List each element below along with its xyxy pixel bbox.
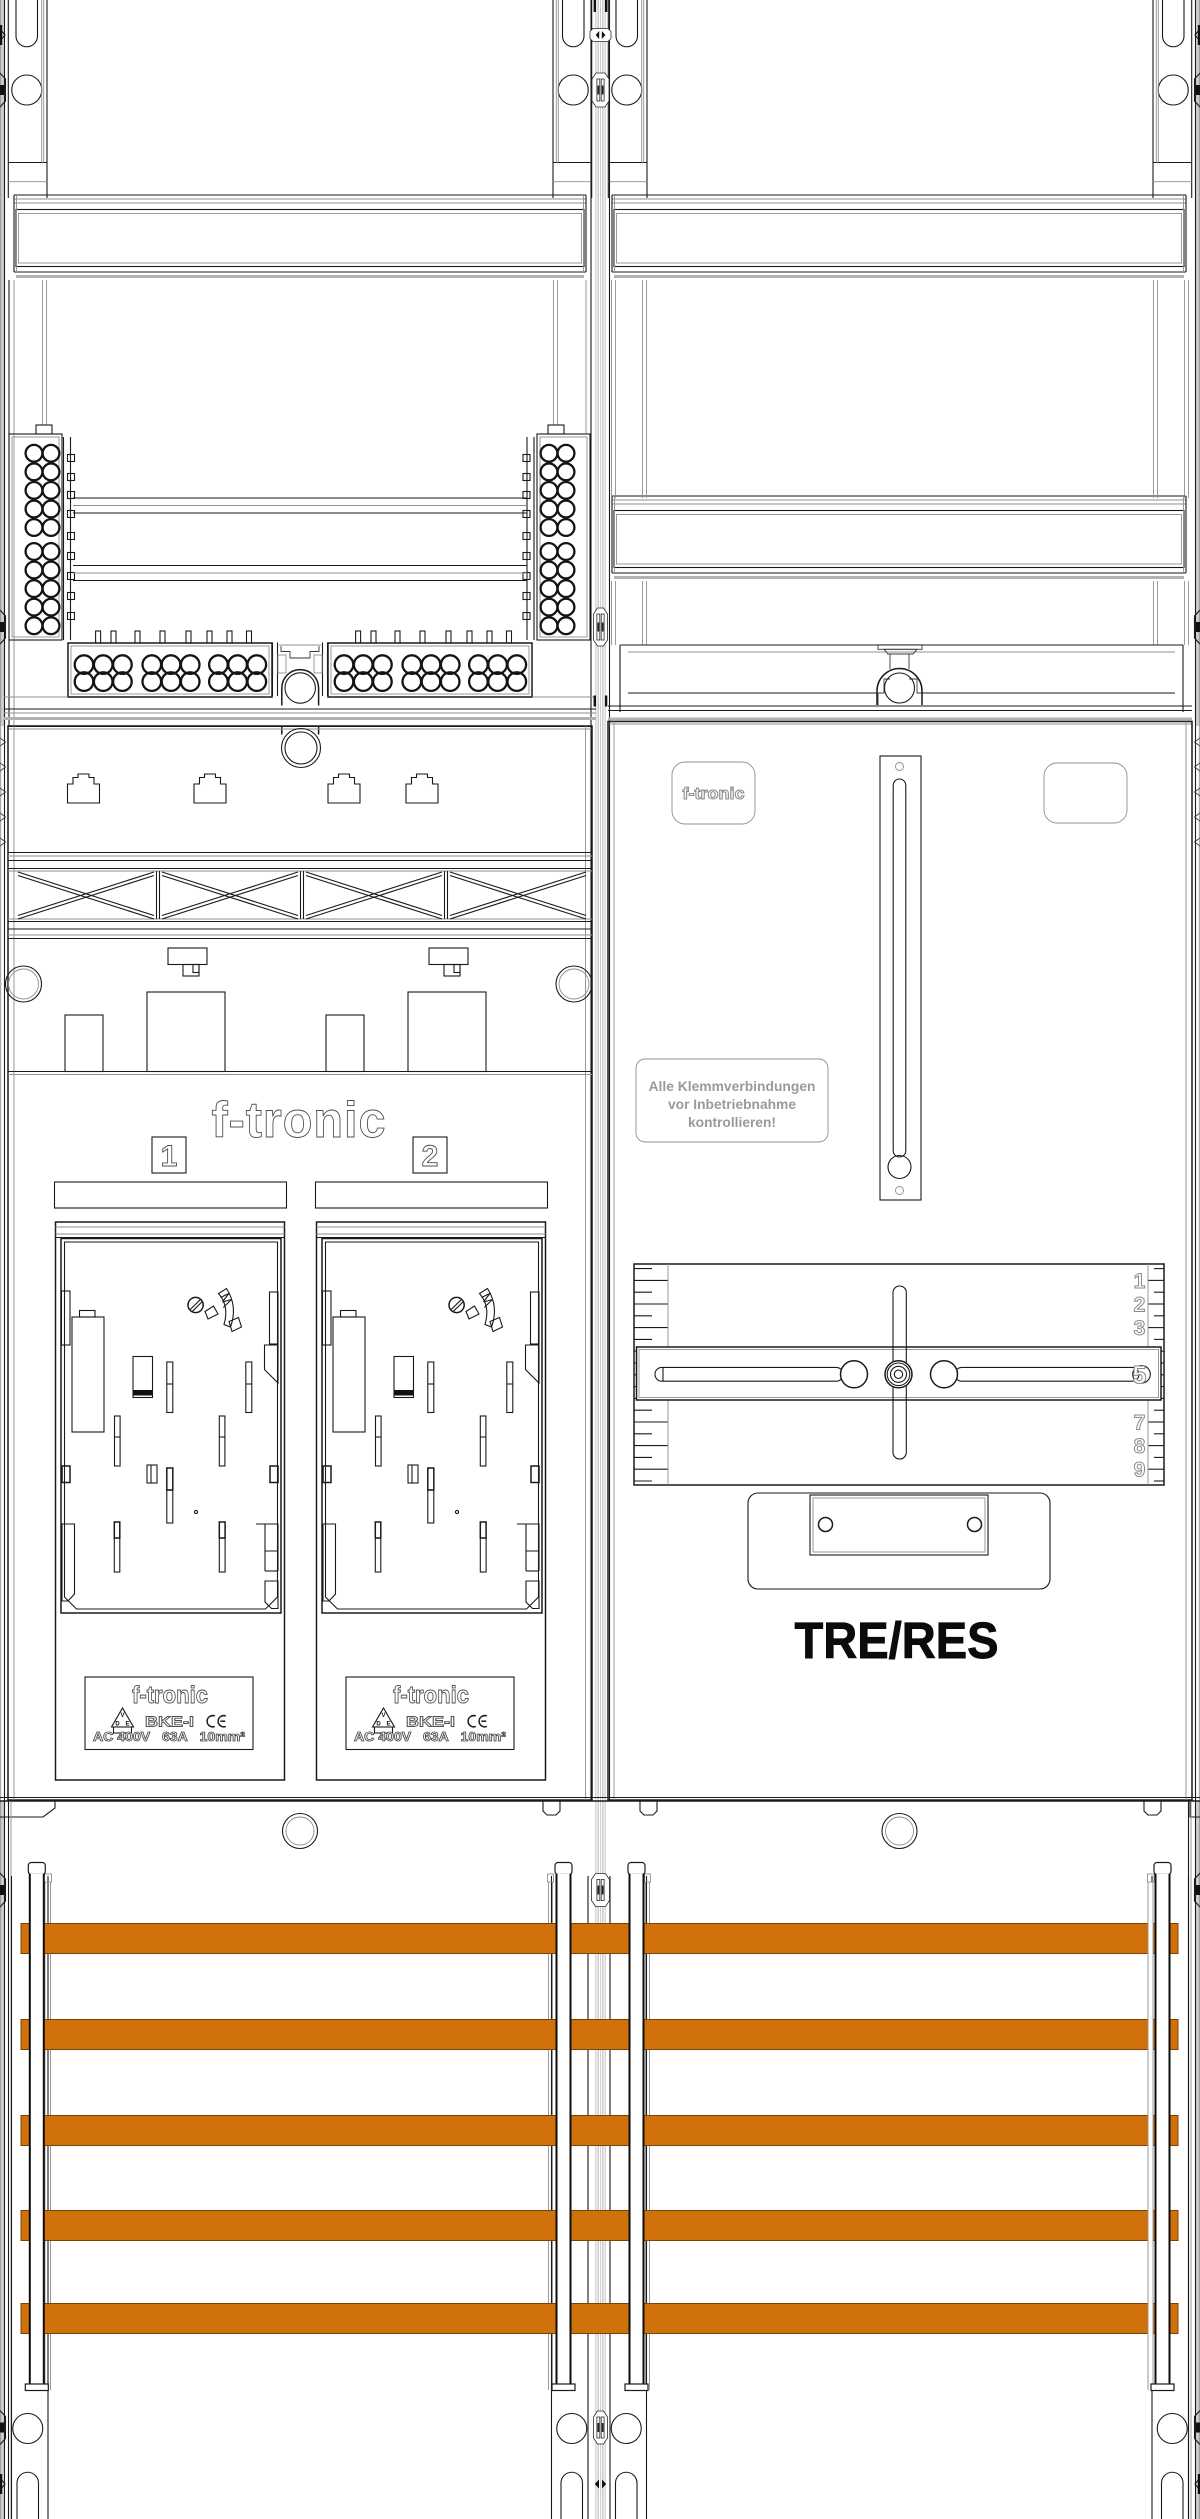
svg-text:f-tronic: f-tronic — [393, 1682, 469, 1709]
svg-text:f-tronic: f-tronic — [212, 1092, 387, 1148]
svg-text:D: D — [115, 1722, 120, 1728]
svg-text:E: E — [386, 1722, 390, 1728]
svg-text:2: 2 — [1134, 1294, 1146, 1317]
svg-text:AC 400V 63A 10mm²: AC 400V 63A 10mm² — [93, 1730, 245, 1744]
svg-text:f-tronic: f-tronic — [132, 1682, 208, 1709]
svg-text:1: 1 — [1134, 1270, 1146, 1293]
svg-text:7: 7 — [1134, 1412, 1146, 1435]
svg-text:BKE-I: BKE-I — [145, 1713, 194, 1730]
svg-text:8: 8 — [1134, 1435, 1146, 1458]
svg-text:Alle Klemmverbindungen: Alle Klemmverbindungen — [649, 1079, 816, 1094]
svg-text:TRE/RES: TRE/RES — [795, 1612, 999, 1669]
svg-text:vor Inbetriebnahme: vor Inbetriebnahme — [668, 1097, 796, 1112]
svg-text:1: 1 — [161, 1140, 178, 1173]
svg-text:3: 3 — [1134, 1317, 1146, 1340]
svg-text:V: V — [120, 1713, 124, 1719]
svg-text:5: 5 — [1133, 1361, 1147, 1389]
svg-text:D: D — [376, 1722, 381, 1728]
svg-text:AC 400V 63A 10mm²: AC 400V 63A 10mm² — [354, 1730, 506, 1744]
svg-text:BKE-I: BKE-I — [406, 1713, 455, 1730]
svg-text:V: V — [381, 1713, 385, 1719]
svg-text:f-tronic: f-tronic — [683, 785, 745, 803]
svg-text:kontrollieren!: kontrollieren! — [688, 1115, 776, 1130]
svg-text:9: 9 — [1134, 1459, 1146, 1482]
svg-text:2: 2 — [422, 1140, 439, 1173]
svg-text:E: E — [125, 1722, 129, 1728]
